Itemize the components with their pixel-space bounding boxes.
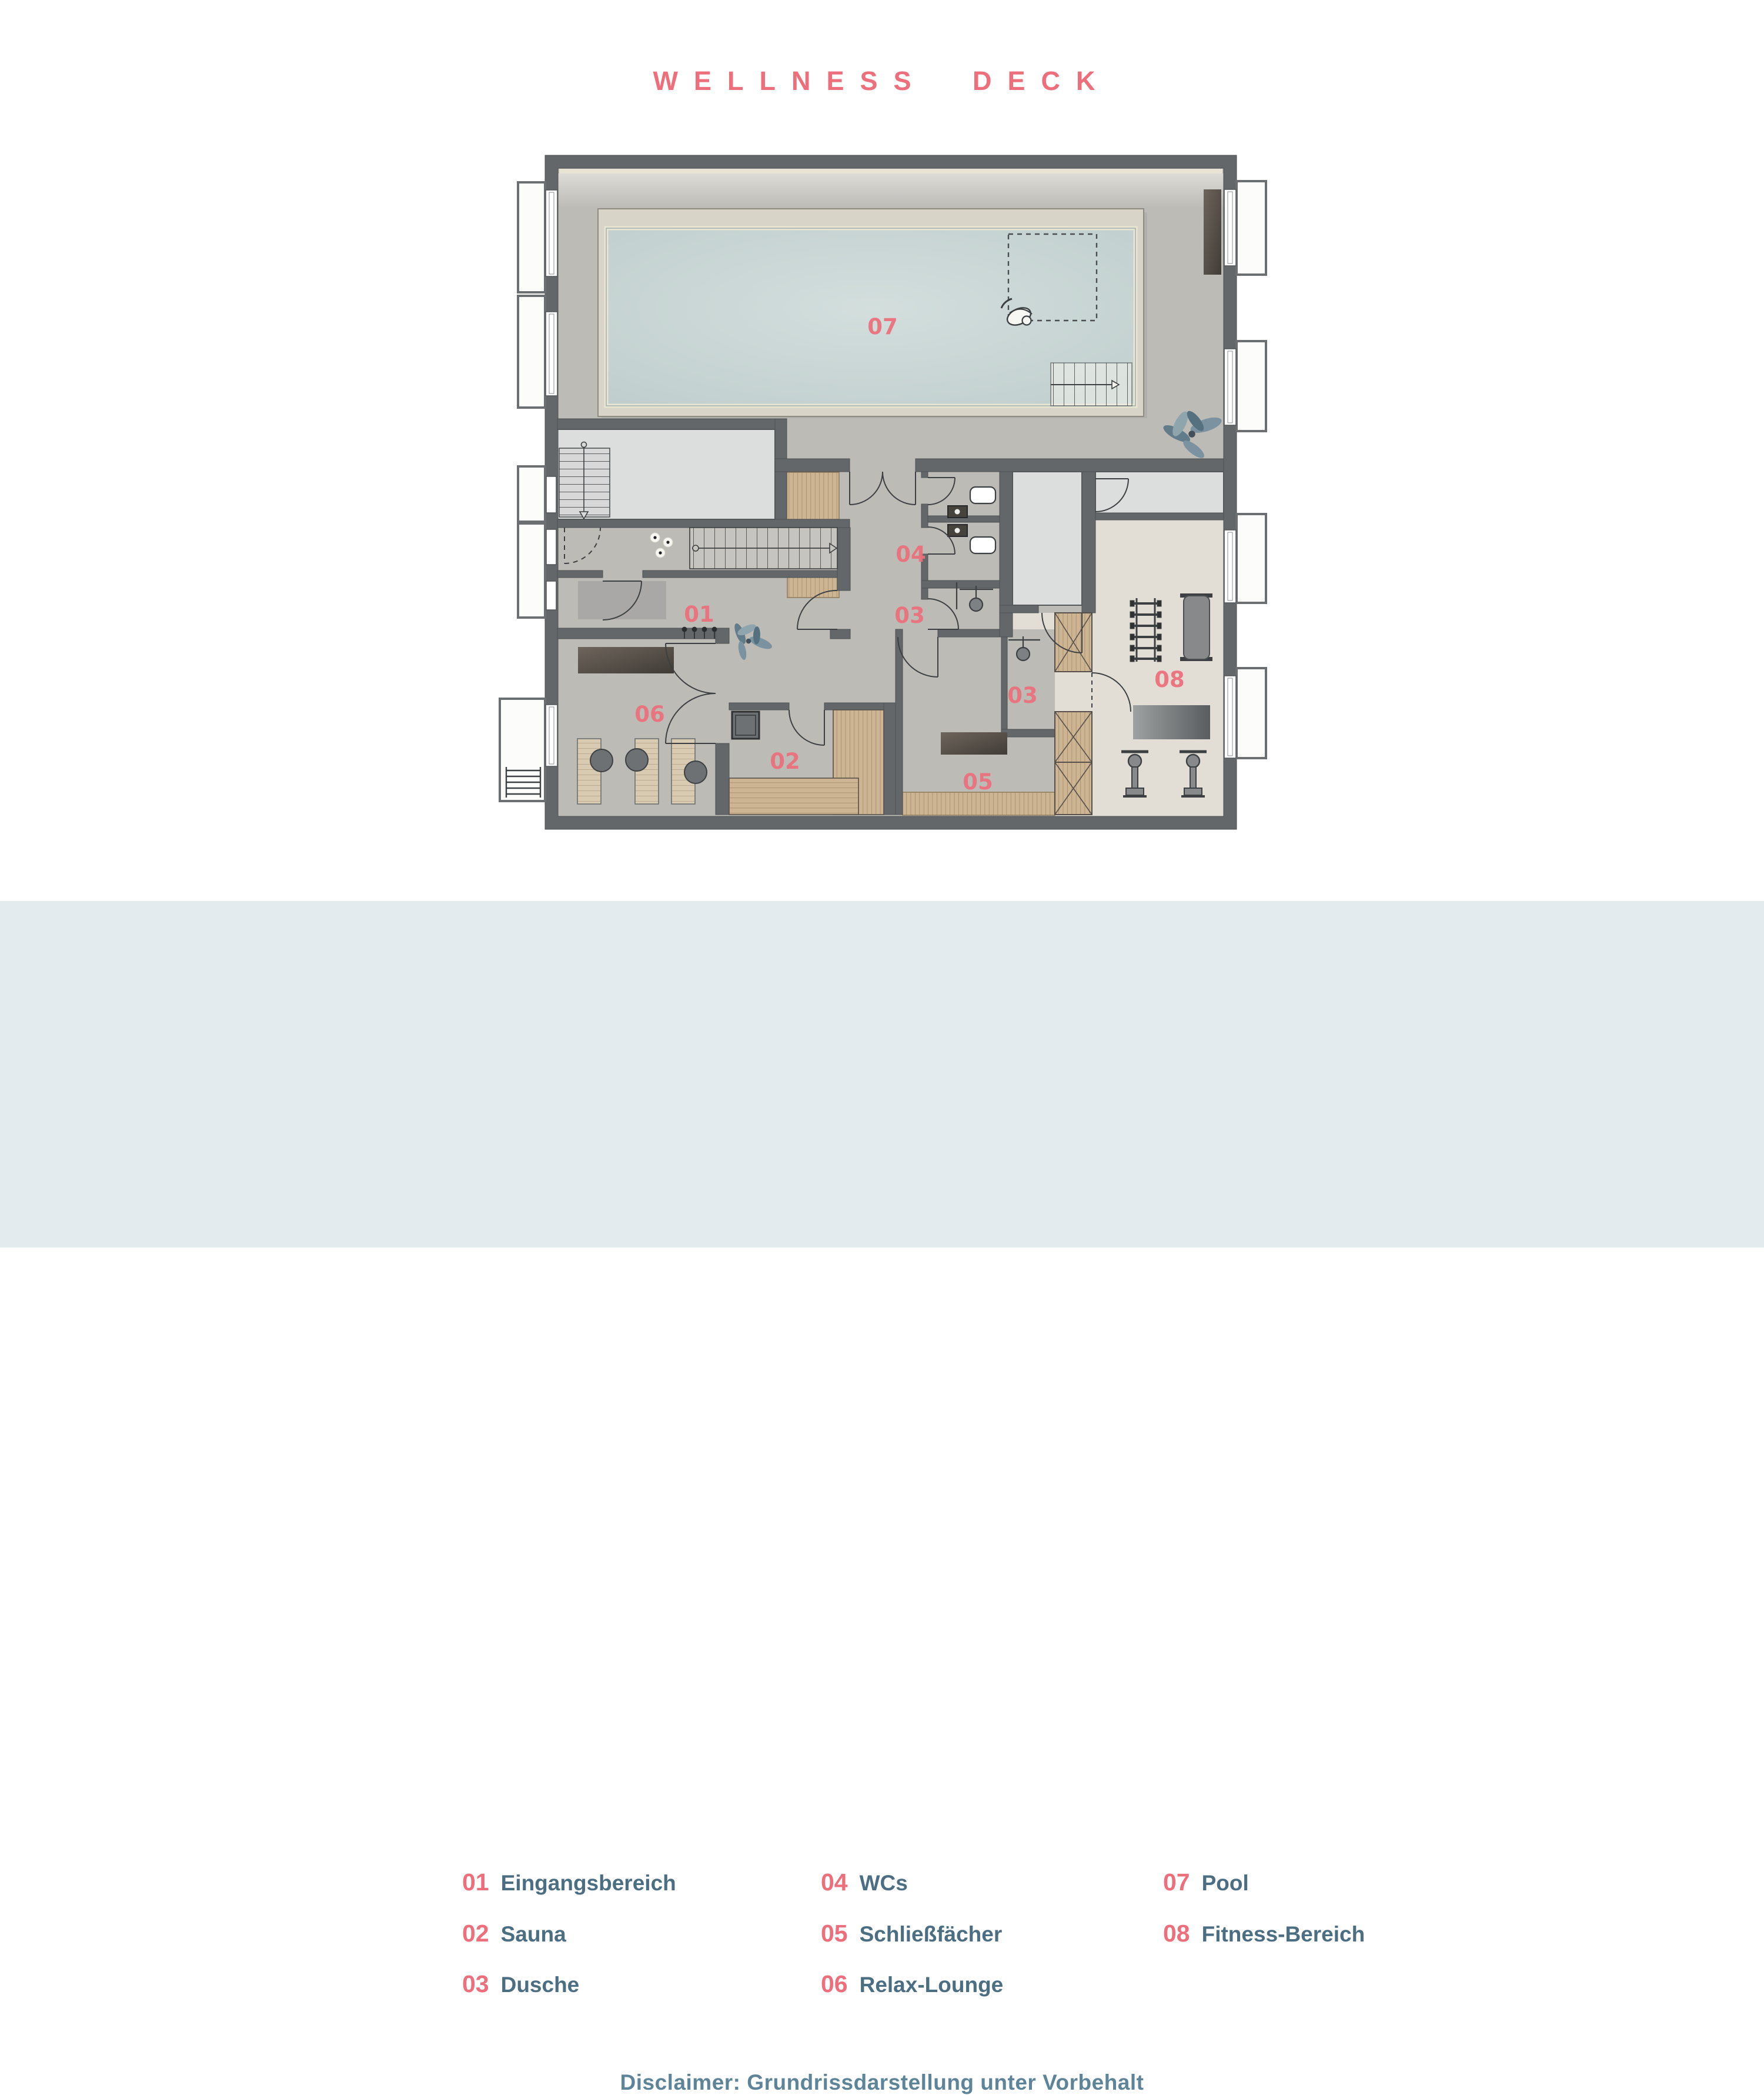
legend-label: Relax-Lounge <box>860 1973 1004 1997</box>
window-box <box>1237 668 1266 758</box>
legend-label: Dusche <box>501 1973 580 1997</box>
legend-num: 05 <box>821 1920 848 1947</box>
window-pane <box>546 581 556 610</box>
window-pane <box>546 529 556 565</box>
room-label-sauna: 02 <box>770 749 800 774</box>
pool-hall-light-band <box>558 174 1224 208</box>
room-label-pool: 07 <box>867 314 898 339</box>
disclaimer-text: Disclaimer: Grundrissdarstellung unter V… <box>0 2070 1764 2095</box>
window-box <box>518 523 545 618</box>
legend-label: Pool <box>1202 1871 1249 1896</box>
pool-hall-highlight <box>559 169 1222 174</box>
window-pane <box>546 476 556 513</box>
legend-label: Sauna <box>501 1922 566 1947</box>
room-label-relax-lounge: 06 <box>634 702 665 727</box>
legend-num: 03 <box>462 1970 489 1998</box>
main-stair <box>690 528 837 569</box>
loungers <box>577 739 707 804</box>
legend-item-04: 04 WCs <box>821 1869 908 1896</box>
window-box <box>518 182 545 292</box>
legend-num: 06 <box>821 1970 848 1998</box>
window-box <box>1237 341 1266 431</box>
locker-room-bench <box>941 732 1007 755</box>
legend-item-02: 02 Sauna <box>462 1920 566 1947</box>
toilet <box>970 487 995 503</box>
legend-label: WCs <box>860 1871 908 1896</box>
window-box <box>518 466 545 522</box>
legend-num: 01 <box>462 1869 489 1896</box>
page-title: WELLNESS DECK <box>0 66 1764 96</box>
room-label-schliessfaecher: 05 <box>963 769 993 795</box>
legend-num: 04 <box>821 1869 848 1896</box>
legend-item-01: 01 Eingangsbereich <box>462 1869 676 1896</box>
gym-mat <box>1133 705 1210 739</box>
legend-item-08: 08 Fitness-Bereich <box>1163 1920 1365 1947</box>
legend-item-03: 03 Dusche <box>462 1970 579 1998</box>
legend-band: 01 Eingangsbereich 02 Sauna 03 Dusche 04… <box>0 901 1764 1247</box>
room-label-dusche-upper: 03 <box>894 603 925 628</box>
pool-stairs <box>1051 363 1132 406</box>
window-box <box>1237 514 1266 603</box>
toilet <box>970 537 995 553</box>
room-label-dusche-lower: 03 <box>1007 683 1038 708</box>
sauna-bench-horizontal <box>729 778 858 815</box>
legend-label: Fitness-Bereich <box>1202 1922 1365 1947</box>
legend-num: 08 <box>1163 1920 1190 1947</box>
entrance-rug <box>578 581 666 619</box>
locker-room-wood-floor <box>903 792 1055 815</box>
window-box <box>1237 181 1266 275</box>
legend-item-06: 06 Relax-Lounge <box>821 1970 1003 1998</box>
room-label-eingangsbereich: 01 <box>684 602 714 627</box>
wellness-deck-floorplan-page: { "title": "WELLNESS DECK", "legend": { … <box>0 0 1764 1247</box>
pool-side-shelf <box>1204 189 1221 275</box>
floor-plan: 07 01 04 03 03 05 06 02 08 <box>494 147 1282 853</box>
legend-item-05: 05 Schließfächer <box>821 1920 1002 1947</box>
legend-item-07: 07 Pool <box>1163 1869 1249 1896</box>
sauna-heater <box>732 712 759 739</box>
legend-label: Schließfächer <box>860 1922 1003 1947</box>
room-label-fitness: 08 <box>1154 667 1185 692</box>
stairwell-stair <box>559 442 610 519</box>
room-label-wcs: 04 <box>896 542 926 567</box>
window-box <box>518 296 545 408</box>
pool-area <box>598 189 1221 418</box>
legend-label: Eingangsbereich <box>501 1871 676 1896</box>
side-room-1 <box>1013 472 1082 605</box>
locker-shafts <box>1055 613 1092 815</box>
legend-num: 02 <box>462 1920 489 1947</box>
lounge-sideboard <box>578 647 674 673</box>
wood-floor-patch-upper <box>787 472 839 519</box>
legend-num: 07 <box>1163 1869 1190 1896</box>
workout-bench <box>1180 593 1212 661</box>
